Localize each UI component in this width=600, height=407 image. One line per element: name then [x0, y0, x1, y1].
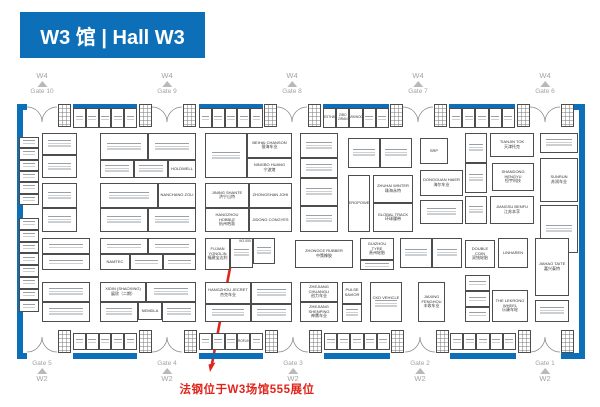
- booth: [465, 307, 490, 322]
- booth: [42, 238, 90, 254]
- stair-block: [309, 330, 322, 353]
- stair-block: [184, 330, 197, 353]
- booth: ZHONGSHAN JOHI: [249, 183, 292, 208]
- wall-booth: [73, 108, 86, 128]
- stair-block: [308, 104, 321, 127]
- wall-booth: [199, 333, 212, 350]
- wall-booth: [19, 218, 39, 230]
- hall-wall-bottom: [450, 353, 516, 359]
- booth: [300, 206, 338, 232]
- exit-gate-3: Gate 3W2: [283, 360, 303, 383]
- wall-booth: [237, 108, 250, 128]
- wall-booth: [19, 253, 39, 265]
- booth: [42, 155, 77, 178]
- booth: HEROPOWER: [348, 175, 370, 232]
- booth: [100, 238, 148, 254]
- wall-booth: [86, 108, 99, 128]
- booth: [42, 208, 77, 232]
- gate-label: Gate 3: [283, 360, 303, 367]
- wall-booth: [19, 242, 39, 254]
- booth: XIDIN (SHAOXING)展欣（二期）: [100, 282, 146, 302]
- wall-booth: [212, 333, 225, 350]
- stair-block: [58, 330, 71, 353]
- booth: THE LEKRONG WHEEL乐康车轮: [492, 290, 528, 322]
- wall-booth: [475, 108, 488, 128]
- wall-booth: [364, 333, 377, 350]
- road-label: W4: [30, 72, 53, 80]
- booth: [146, 282, 196, 302]
- wall-booth: [199, 108, 212, 128]
- gate-label: Gate 8: [282, 88, 302, 95]
- booth: [251, 304, 292, 322]
- wall-booth: [19, 194, 39, 205]
- booth: [148, 208, 196, 232]
- wall-booth: [490, 333, 503, 350]
- wall-booth: [250, 108, 263, 128]
- gate-label: Gate 5: [32, 360, 52, 367]
- booth: [360, 260, 394, 270]
- booth: SUNRUN苏润车业: [540, 158, 578, 202]
- exit-gate-5: Gate 5W2: [32, 360, 52, 383]
- booth: [134, 160, 168, 178]
- booth: LINHAREN: [498, 238, 528, 268]
- booth: NINGBO HUANG宁波煌: [247, 158, 292, 178]
- gate-label: Gate 9: [157, 88, 177, 95]
- wall-booth: [350, 333, 363, 350]
- booth: HOLDWELL: [168, 160, 196, 178]
- booth: [42, 254, 90, 270]
- booth: [342, 304, 362, 322]
- wall-booth: [19, 171, 39, 182]
- exit-triangle-icon: [287, 81, 297, 87]
- booth: [100, 302, 138, 322]
- gate-label: Gate 1: [535, 360, 555, 367]
- wall-booth: [99, 333, 112, 350]
- wall-booth: PROFLINE: [237, 333, 250, 350]
- wall-booth: [250, 333, 263, 350]
- booth: GUIZHOU TYRE贵州轮胎: [360, 238, 394, 260]
- booth: [300, 133, 338, 158]
- exit-gate-6: W4Gate 6: [535, 72, 555, 95]
- booth: NEMDLA: [138, 302, 162, 320]
- booth: DONGGUAN HAIER海尔车业: [420, 170, 463, 196]
- stair-block: [183, 104, 196, 127]
- booth: DOUBLE COIN双钱轮胎: [465, 240, 495, 268]
- exit-gate-4: Gate 4W2: [157, 360, 177, 383]
- gate-label: Gate 2: [410, 360, 430, 367]
- stair-block: [518, 330, 531, 353]
- hall-wall-bottom: [73, 353, 137, 359]
- booth: [42, 302, 90, 322]
- booth: TIANJIN TOK天津托克: [490, 133, 534, 157]
- wall-booth: [99, 108, 112, 128]
- booth: JINING SHANTE济宁山特: [205, 183, 249, 208]
- road-label: W2: [32, 375, 52, 383]
- booth: [100, 183, 158, 208]
- gate-label: Gate 6: [535, 88, 555, 95]
- hall-wall-bottom: [199, 353, 263, 359]
- booth: HANGZHOU HOBBLE杭州哈勃: [205, 208, 249, 232]
- road-label: W2: [410, 375, 430, 383]
- road-label: W2: [283, 375, 303, 383]
- wall-booth: [19, 277, 39, 289]
- wall-booth: HESTHAW: [323, 108, 336, 128]
- exit-gate-7: W4Gate 7: [408, 72, 428, 95]
- booth: [162, 302, 196, 322]
- booth: [535, 300, 569, 322]
- booth: [465, 291, 490, 307]
- road-label: W4: [535, 72, 555, 80]
- road-label: W2: [157, 375, 177, 383]
- exit-triangle-icon: [540, 81, 550, 87]
- wall-booth: [19, 230, 39, 242]
- exit-gate-10: W4Gate 10: [30, 72, 53, 95]
- road-label: W4: [157, 72, 177, 80]
- booth: [380, 138, 412, 168]
- wall-booth: [489, 108, 502, 128]
- booth: [205, 133, 247, 178]
- wall-booth: [225, 333, 238, 350]
- road-label: W2: [535, 375, 555, 383]
- booth: SRP: [420, 138, 448, 164]
- booth: FUJIAN YONGLIN福建宝达利: [205, 238, 230, 270]
- wall-booth: [376, 108, 389, 128]
- wall-booth: [212, 108, 225, 128]
- wall-booth: [124, 108, 137, 128]
- booth: ZHEJIANG CHUANGLI创力车业: [300, 282, 338, 302]
- booth: [465, 275, 490, 291]
- booth: JIAHAO TAITE嘉兴泰特: [535, 238, 569, 296]
- exit-triangle-icon: [413, 81, 423, 87]
- stair-block: [391, 330, 404, 353]
- wall-booth: [19, 182, 39, 193]
- booth: [300, 158, 338, 178]
- booth: ZHEJIANG SHENPING神鹰车业: [300, 302, 338, 322]
- wall-booth: [19, 148, 39, 159]
- booth: NAMTEC: [100, 254, 130, 270]
- booth: NANCHANG ZOLI: [158, 183, 196, 208]
- booth: [540, 133, 578, 153]
- booth: BEIHAI CHANSON银海车业: [247, 133, 292, 158]
- annotation-arrow-head: [209, 363, 216, 373]
- stair-block: [561, 104, 574, 127]
- exit-gate-9: W4Gate 9: [157, 72, 177, 95]
- stair-block: [517, 104, 530, 127]
- booth: [148, 133, 196, 160]
- booth: [465, 196, 487, 224]
- booth: CKD VEHICLE: [370, 282, 402, 322]
- booth: [251, 282, 292, 304]
- gate-label: Gate 4: [157, 360, 177, 367]
- exit-gate-2: Gate 2W2: [410, 360, 430, 383]
- wall-booth: [19, 300, 39, 312]
- hall-wall-right: [579, 104, 585, 359]
- wall-booth: [363, 108, 376, 128]
- stair-block: [561, 330, 574, 353]
- wall-booth: [502, 108, 515, 128]
- stair-block: [265, 330, 278, 353]
- booth: [400, 238, 432, 268]
- stair-block: [139, 104, 152, 127]
- hall-w3-floorplan: W3 馆 | Hall W3 法钢位于W3场馆555展位 W4Gate 10W4…: [0, 0, 600, 407]
- exit-triangle-icon: [37, 81, 47, 87]
- booth: ZHONGCE RUBBER中策橡胶: [295, 240, 353, 268]
- wall-booth: [19, 160, 39, 171]
- stair-block: [390, 104, 403, 127]
- booth: [163, 254, 196, 270]
- wall-booth: [450, 333, 463, 350]
- booth: [432, 238, 462, 268]
- booth: [348, 138, 380, 168]
- booth: JIDONG CONGYES: [249, 208, 292, 232]
- wall-booth: [377, 333, 390, 350]
- wall-booth: ZIBO ZIRAN: [336, 108, 349, 128]
- wall-booth: PARKWOOD: [349, 108, 362, 128]
- wall-booth: [449, 108, 462, 128]
- road-label: W4: [282, 72, 302, 80]
- booth: [148, 238, 196, 254]
- wall-booth: [111, 333, 124, 350]
- wall-booth: [19, 265, 39, 277]
- booth: [465, 163, 487, 193]
- exit-triangle-icon: [162, 81, 172, 87]
- booth: [300, 178, 338, 206]
- wall-booth: [503, 333, 516, 350]
- booth: JIANGSU BENFU江苏本孚: [490, 196, 534, 224]
- wall-booth: [111, 108, 124, 128]
- wall-booth: [225, 108, 238, 128]
- wall-booth: [124, 333, 137, 350]
- booth: JIAXING FENGHOU丰收车业: [418, 282, 445, 322]
- stair-block: [264, 104, 277, 127]
- wall-booth: [324, 333, 337, 350]
- wall-booth: [476, 333, 489, 350]
- gate-label: Gate 7: [408, 88, 428, 95]
- booth: HANGZHOU JECRET杰克车业: [205, 282, 251, 304]
- booth: ZHUHAI WINTER珠海永特: [373, 175, 413, 203]
- exit-gate-1: Gate 1W2: [535, 360, 555, 383]
- stair-block: [58, 104, 71, 127]
- page-title: W3 馆 | Hall W3: [20, 12, 205, 58]
- booth: [465, 133, 487, 163]
- booth: PULSE SAVIOR: [342, 282, 362, 304]
- stair-block: [139, 330, 152, 353]
- exit-gate-8: W4Gate 8: [282, 72, 302, 95]
- wall-booth: [73, 333, 86, 350]
- booth: SHANDONG HENGYU恒宇科技: [492, 163, 534, 191]
- wall-booth: [463, 333, 476, 350]
- booth-w3-555: W3.555: [230, 238, 253, 268]
- booth-annotation-text: 法钢位于W3场馆555展位: [128, 381, 366, 397]
- wall-booth: [337, 333, 350, 350]
- wall-booth: [86, 333, 99, 350]
- booth: [42, 282, 90, 302]
- wall-booth: [19, 137, 39, 148]
- booth: [100, 160, 134, 178]
- stair-block: [436, 330, 449, 353]
- wall-booth: [19, 289, 39, 301]
- booth: [205, 304, 251, 322]
- booth: GLOBAL TRACK环球履带: [373, 203, 413, 232]
- road-label: W4: [408, 72, 428, 80]
- booth: [42, 183, 77, 208]
- booth: [253, 238, 275, 264]
- booth: [42, 133, 77, 155]
- stair-block: [434, 104, 447, 127]
- booth: [420, 200, 463, 224]
- hall-wall-bottom: [324, 353, 390, 359]
- booth: [130, 254, 163, 270]
- wall-booth: [462, 108, 475, 128]
- booth: [100, 208, 148, 232]
- gate-label: Gate 10: [30, 88, 53, 95]
- booth: [100, 133, 148, 160]
